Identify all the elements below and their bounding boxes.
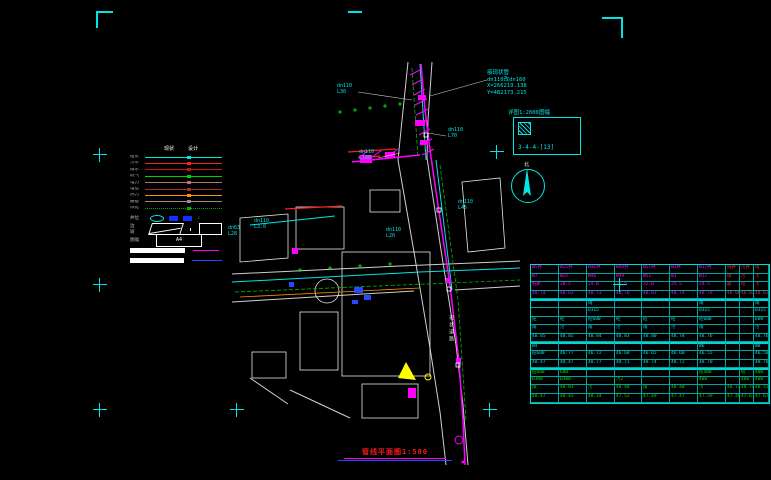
table-cell <box>615 342 642 351</box>
table-cell: 600 <box>754 317 769 326</box>
legend-sheet-label: 图幅 <box>130 237 145 243</box>
table-cell: 砼600 <box>531 351 559 360</box>
table-cell: 46.60 <box>670 351 698 360</box>
white-bar-icon <box>130 258 184 263</box>
table-cell: W3 <box>670 274 698 283</box>
table-cell <box>740 325 754 334</box>
grid-cross-icon <box>93 278 107 292</box>
legend-row-label: 电力 <box>130 181 145 186</box>
drawing-title: 管线平面图1:500 <box>330 447 460 457</box>
table-cell <box>726 325 740 334</box>
table-cell: 48.74 <box>531 291 559 300</box>
table-cell <box>642 299 670 308</box>
table-cell: 污 <box>754 274 769 283</box>
table-cell: D315 <box>698 308 726 317</box>
valve-rect-icon <box>169 216 178 221</box>
valve-rect-icon <box>183 216 192 221</box>
table-cell: 47.52 <box>615 394 642 403</box>
table-cell <box>740 334 754 343</box>
table-cell: 48.74 <box>670 291 698 300</box>
table-cell: 47.59 <box>698 394 726 403</box>
table-cell: 雨 <box>726 274 740 283</box>
table-cell <box>559 299 587 308</box>
table-cell: 400 <box>698 377 726 386</box>
table-cell: 48.63 <box>559 291 587 300</box>
cad-canvas[interactable]: 接现状管 dn110改dn160 X=266219.138 Y=482173.2… <box>0 0 771 480</box>
table-cell <box>615 308 642 317</box>
table-cell: 桩距 <box>531 282 559 291</box>
table-cell <box>726 317 740 326</box>
table-cell: 46.72 <box>587 351 615 360</box>
white-bar-icon <box>130 248 185 253</box>
table-cell <box>740 360 754 369</box>
table-cell: 48.48 <box>615 385 642 394</box>
legend: 现状 设计 给水污水雨水燃气电力电信热力路基绿化 井位 ∠ 边坡 图幅 A4 <box>130 145 222 265</box>
table-cell: 污 <box>670 325 698 334</box>
table-cell: W49井 <box>615 265 642 274</box>
table-cell: 46.55 <box>698 351 726 360</box>
yellow-survey-marks <box>398 362 431 380</box>
table-cell: 47.46 <box>726 394 740 403</box>
pipe-annotation: dn110 L20 <box>386 228 401 240</box>
table-cell: 48.71 <box>615 360 642 369</box>
table-cell: 污 <box>754 325 769 334</box>
table-cell <box>740 308 754 317</box>
table-cell: W46 <box>587 274 615 283</box>
table-cell: 25.5 <box>670 282 698 291</box>
table-cell <box>740 317 754 326</box>
legend-header: 现状 设计 <box>164 145 222 152</box>
table-cell: 砼600 <box>587 317 615 326</box>
leader-lines <box>358 80 487 158</box>
table-cell: W17井 <box>698 265 726 274</box>
pipe-annotation: dn110 L30 <box>337 84 352 96</box>
table-cell: 400 <box>754 368 769 377</box>
title-underline-blue <box>338 460 452 461</box>
table-cell: 48.70 <box>698 360 726 369</box>
table-cell: 48.80 <box>642 334 670 343</box>
legend-line-swatch <box>145 176 222 177</box>
table-cell: 48.74 <box>740 385 754 394</box>
table-cell: 48.47 <box>559 360 587 369</box>
table-cell: W17 <box>698 274 726 283</box>
legend-row-label: 绿化 <box>130 206 145 211</box>
table-cell <box>670 299 698 308</box>
table-cell: W7 <box>531 274 559 283</box>
green-utility-lines <box>235 68 520 420</box>
table-cell: 砼 <box>531 317 559 326</box>
table-cell <box>740 299 754 308</box>
table-cell: W25井 <box>559 265 587 274</box>
pipe-annotation: dn110 L70 <box>448 128 463 140</box>
table-cell: W51 <box>642 274 670 283</box>
legend-line-swatch <box>145 208 222 209</box>
table-cell: 污 <box>754 282 769 291</box>
table-cell <box>726 308 740 317</box>
table-cell: 47.67 <box>740 394 754 403</box>
table-cell <box>559 308 587 317</box>
table-cell: 48.34 <box>587 394 615 403</box>
table-cell: W5井 <box>531 265 559 274</box>
sheet-corner-markers <box>97 12 622 38</box>
grid-cross-icon <box>490 145 504 159</box>
detail-reference-box: 详图1:2000图幅 3-4-4-[13] <box>513 117 581 155</box>
table-cell: 48.47 <box>531 394 559 403</box>
legend-row-label: 热力 <box>130 193 145 198</box>
table-cell: 46.50 <box>754 351 769 360</box>
table-cell <box>670 377 698 386</box>
legend-line-swatch <box>145 182 222 183</box>
parcel-outlines <box>240 178 505 418</box>
table-cell: 48.72 <box>726 385 740 394</box>
table-cell: D300 <box>531 377 559 386</box>
table-cell: 46.02 <box>740 291 754 300</box>
table-cell: 雨 <box>531 325 559 334</box>
table-cell: 雨 <box>642 325 670 334</box>
legend-col-existing: 现状 <box>164 145 174 152</box>
table-cell <box>615 299 642 308</box>
table-cell <box>642 342 670 351</box>
table-cell: 48.76 <box>698 334 726 343</box>
table-cell: 48.81 <box>642 291 670 300</box>
table-cell: 砼 <box>670 317 698 326</box>
table-cell: 47.49 <box>642 394 670 403</box>
table-cell: 48.77 <box>587 360 615 369</box>
well-ellipse-icon <box>150 215 164 222</box>
legend-row-label: 雨水 <box>130 168 145 173</box>
table-cell: 24.0 <box>587 282 615 291</box>
table-cell: 48.85 <box>559 334 587 343</box>
a4-sheet-box: A4 <box>156 234 202 247</box>
pipe-annotation: dn63 L28 <box>228 226 240 238</box>
table-cell: 污井 <box>740 265 754 274</box>
legend-line-rows: 给水污水雨水燃气电力电信热力路基绿化 <box>130 154 222 212</box>
table-cell: 雨 <box>754 265 769 274</box>
table-cell: 砼 <box>740 282 754 291</box>
road-name-label: 现状道路 <box>448 315 455 343</box>
legend-bar-row-2 <box>130 257 222 265</box>
table-cell: 47.67 <box>754 394 769 403</box>
table-cell: 雨 <box>642 385 670 394</box>
blue-line-icon <box>192 260 222 261</box>
magenta-line-icon <box>193 250 219 251</box>
grid-cross-icon <box>483 403 497 417</box>
table-cell <box>670 368 698 377</box>
table-cell: W3井 <box>670 265 698 274</box>
roads <box>232 62 520 465</box>
table-cell <box>726 368 740 377</box>
dot-icon <box>190 228 192 231</box>
table-cell: 48.83 <box>615 334 642 343</box>
title-underline-magenta <box>344 458 446 459</box>
table-cell <box>642 368 670 377</box>
table-cell: 48.47 <box>531 360 559 369</box>
grid-cross-icon <box>93 148 107 162</box>
table-cell: 污 <box>698 385 726 394</box>
table-cell: 雨 <box>531 385 559 394</box>
drawing-title-block: 管线平面图1:500 <box>330 447 460 461</box>
table-cell: 48.73 <box>587 291 615 300</box>
legend-well-row: 井位 ∠ <box>130 214 222 223</box>
detail-box-label: 详图1:2000图幅 <box>508 108 550 116</box>
table-cell: 24.5 <box>698 282 726 291</box>
table-cell: 48.42 <box>559 394 587 403</box>
legend-row-label: 电信 <box>130 187 145 192</box>
table-cell: 砼 <box>559 317 587 326</box>
table-cell: W25 <box>559 274 587 283</box>
table-cell: 48.08 <box>726 291 740 300</box>
legend-slope-label: 边坡 <box>130 223 139 235</box>
table-cell: 雨 <box>698 299 726 308</box>
legend-well-label: 井位 <box>130 215 145 221</box>
table-cell <box>642 308 670 317</box>
pipe-data-table: W5井W25井W46井W49井W51井W3井W17井雨井污井雨W7W25W46W… <box>530 264 770 404</box>
table-cell: 砼400 <box>698 368 726 377</box>
legend-sheet-row: 图幅 A4 <box>130 236 222 245</box>
legend-row-label: 路基 <box>130 200 145 205</box>
table-cell: W4 <box>531 342 559 351</box>
table-cell <box>740 351 754 360</box>
water-pipeline-existing <box>232 64 520 290</box>
north-circle <box>511 169 545 203</box>
table-cell: 48.02 <box>754 291 769 300</box>
table-cell: 600 <box>559 368 587 377</box>
table-cell <box>670 308 698 317</box>
table-cell: 400 <box>740 377 754 386</box>
table-cell: 48.79 <box>698 291 726 300</box>
legend-line-swatch <box>145 163 222 164</box>
pipe-annotation: dn110 L3.0 <box>254 219 269 231</box>
table-cell <box>559 342 587 351</box>
table-cell <box>531 308 559 317</box>
legend-row-label: 燃气 <box>130 174 145 179</box>
grid-cross-icon <box>613 278 627 292</box>
grid-cross-icon <box>230 403 244 417</box>
table-cell: 污 <box>740 274 754 283</box>
table-cell <box>615 368 642 377</box>
legend-col-design: 设计 <box>188 145 198 152</box>
table-cell: 48.85 <box>531 334 559 343</box>
north-label: 北 <box>524 161 529 168</box>
table-cell: 46.65 <box>642 351 670 360</box>
table-cell: D315 <box>754 308 769 317</box>
legend-bar-row-1 <box>130 247 222 255</box>
table-cell: 48.72 <box>670 360 698 369</box>
table-cell <box>740 342 754 351</box>
table-cell: 48.70 <box>754 360 769 369</box>
legend-row-label: 给水 <box>130 155 145 160</box>
table-cell: 雨 <box>698 325 726 334</box>
table-cell <box>587 342 615 351</box>
tree-ticks <box>298 102 402 272</box>
table-cell: 雨 <box>587 325 615 334</box>
table-cell <box>531 299 559 308</box>
table-cell: 砼600 <box>698 317 726 326</box>
table-cell: 污 <box>615 325 642 334</box>
table-cell: D315 <box>587 308 615 317</box>
detail-sheet-code: 3-4-4-[13] <box>518 144 554 151</box>
table-cell: 48.40 <box>670 385 698 394</box>
table-cell: 雨 <box>587 299 615 308</box>
table-cell: 22.0 <box>642 282 670 291</box>
slope-symbol-icon <box>148 223 184 235</box>
pipe-annotation: dn110 L190 <box>359 150 374 162</box>
table-cell <box>726 377 740 386</box>
table-cell <box>726 342 740 351</box>
table-cell: 砼600 <box>531 368 559 377</box>
table-cell: 47.47 <box>670 394 698 403</box>
drawing-linework <box>0 0 771 480</box>
table-cell: 46.68 <box>615 351 642 360</box>
table-cell <box>726 299 740 308</box>
outline-rect-icon <box>199 223 222 235</box>
north-arrow: 北 <box>509 165 547 203</box>
table-cell: 最 <box>726 282 740 291</box>
tree-tick-icon: ∠ <box>197 215 200 221</box>
legend-row: 绿化 <box>130 205 222 211</box>
legend-line-swatch <box>145 157 222 158</box>
grid-cross-icon <box>93 403 107 417</box>
table-cell: W51井 <box>642 265 670 274</box>
table-cell: 400 <box>754 377 769 386</box>
table-cell: W6 <box>698 342 726 351</box>
table-cell: 48.76 <box>754 334 769 343</box>
hatch-square-icon <box>518 122 531 135</box>
table-cell <box>587 377 615 386</box>
table-cell: 46.77 <box>559 351 587 360</box>
legend-slope-row: 边坡 <box>130 225 222 234</box>
table-cell: 48.84 <box>587 334 615 343</box>
table-cell: 48.03 <box>559 385 587 394</box>
table-cell: W46井 <box>587 265 615 274</box>
table-cell: 48.74 <box>642 360 670 369</box>
survey-note: 接现状管 dn110改dn160 X=266219.138 Y=482173.2… <box>487 70 527 96</box>
table-cell: 砼 <box>740 368 754 377</box>
table-cell: 污2 <box>615 377 642 386</box>
legend-line-swatch <box>145 195 222 196</box>
table-cell <box>587 368 615 377</box>
table-cell <box>726 334 740 343</box>
table-cell: 28.5 <box>559 282 587 291</box>
table-cell: 砼 <box>642 317 670 326</box>
pipe-annotation: dn110 L45 <box>458 200 473 212</box>
table-cell <box>726 351 740 360</box>
table-cell: 污 <box>587 385 615 394</box>
legend-line-swatch <box>145 201 222 202</box>
table-cell <box>670 342 698 351</box>
table-cell <box>726 360 740 369</box>
table-cell: 雨井 <box>726 265 740 274</box>
legend-line-swatch <box>145 169 222 170</box>
table-cell: D300 <box>559 377 587 386</box>
table-cell: 48.76 <box>615 291 642 300</box>
table-cell: 砼 <box>615 317 642 326</box>
table-cell <box>642 377 670 386</box>
table-cell: 雨 <box>754 299 769 308</box>
table-cell: 48.78 <box>670 334 698 343</box>
table-cell: 48.72 <box>754 385 769 394</box>
legend-row-label: 污水 <box>130 161 145 166</box>
table-cell: 污 <box>559 325 587 334</box>
blue-valve-symbols <box>289 282 371 304</box>
table-cell: W8 <box>754 342 769 351</box>
legend-line-swatch <box>145 189 222 190</box>
